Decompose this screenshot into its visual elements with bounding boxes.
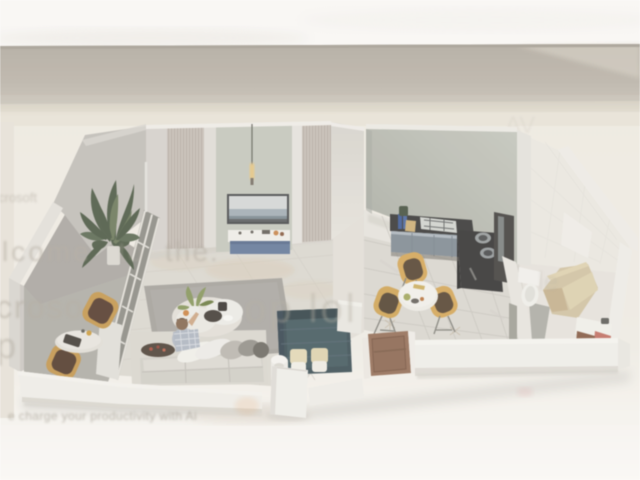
svg-text:p: p <box>0 325 16 366</box>
svg-text:the.: the. <box>165 236 220 267</box>
svg-text:crosoft: crosoft <box>0 190 37 205</box>
svg-text:lcome: lcome <box>2 236 92 267</box>
svg-text:op lol: op lol <box>244 287 358 331</box>
svg-text:croso: croso <box>0 289 84 325</box>
svg-text:e charge your productivity wit: e charge your productivity with Ai <box>8 409 197 423</box>
svg-text:to: to <box>118 236 145 267</box>
svg-text:le: le <box>538 266 558 296</box>
